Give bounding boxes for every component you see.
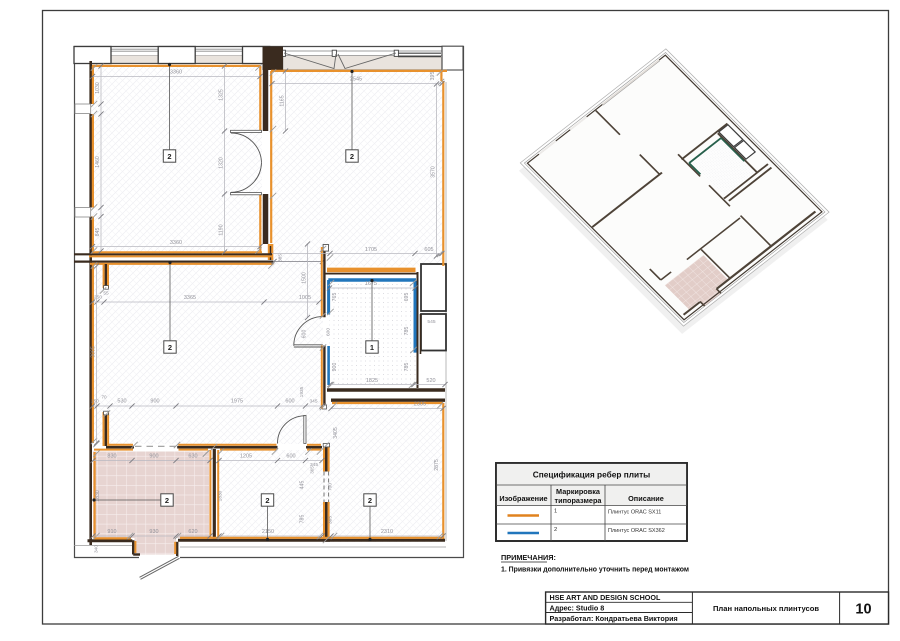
svg-text:630: 630	[188, 454, 197, 460]
svg-text:3570: 3570	[431, 166, 437, 178]
svg-text:2: 2	[167, 152, 171, 161]
svg-text:1005: 1005	[299, 295, 311, 301]
svg-text:Описание: Описание	[628, 494, 664, 503]
svg-text:10: 10	[855, 602, 871, 618]
svg-text:2310: 2310	[381, 529, 393, 535]
svg-text:2: 2	[368, 496, 372, 505]
svg-text:765: 765	[332, 293, 338, 302]
svg-text:2305: 2305	[414, 402, 426, 408]
svg-text:1: 1	[554, 509, 557, 515]
svg-text:930: 930	[149, 529, 158, 535]
svg-text:530: 530	[117, 399, 126, 405]
svg-text:600: 600	[326, 328, 332, 336]
svg-text:365: 365	[328, 516, 334, 524]
svg-text:2: 2	[165, 496, 169, 505]
svg-text:2: 2	[554, 527, 557, 533]
svg-text:1030: 1030	[95, 82, 101, 94]
svg-text:365: 365	[310, 466, 315, 474]
svg-text:55: 55	[103, 291, 109, 297]
svg-text:600: 600	[302, 330, 308, 339]
svg-text:3405: 3405	[333, 427, 339, 439]
svg-text:Плинтус ORAC SX11: Плинтус ORAC SX11	[608, 510, 661, 516]
svg-text:Адрес: Studio 8: Адрес: Studio 8	[550, 603, 605, 612]
svg-text:1325: 1325	[219, 89, 225, 101]
svg-text:1165: 1165	[280, 95, 286, 106]
svg-text:1205: 1205	[240, 454, 252, 460]
svg-text:1675: 1675	[365, 281, 377, 287]
svg-text:1500: 1500	[302, 272, 308, 284]
svg-text:340: 340	[94, 545, 100, 553]
svg-text:395: 395	[430, 72, 436, 81]
svg-text:типоразмера: типоразмера	[555, 496, 603, 505]
svg-text:Изображение: Изображение	[499, 494, 547, 503]
svg-text:HSE ART AND DESIGN SCHOOL: HSE ART AND DESIGN SCHOOL	[550, 593, 661, 602]
svg-text:785: 785	[404, 363, 410, 372]
svg-text:ПРИМЕЧАНИЯ:: ПРИМЕЧАНИЯ:	[501, 553, 556, 562]
svg-text:600: 600	[285, 399, 294, 405]
svg-text:250: 250	[94, 295, 102, 301]
svg-text:545: 545	[427, 319, 435, 325]
svg-text:2875: 2875	[434, 459, 440, 471]
svg-text:3665: 3665	[91, 346, 97, 358]
svg-text:1825: 1825	[366, 378, 378, 384]
svg-text:695: 695	[404, 293, 410, 302]
svg-text:2: 2	[265, 496, 269, 505]
svg-text:3360: 3360	[170, 70, 182, 76]
svg-text:1460: 1460	[95, 156, 101, 168]
svg-text:70: 70	[101, 395, 107, 400]
svg-text:910: 910	[107, 529, 116, 535]
svg-text:3365: 3365	[184, 295, 196, 301]
svg-text:1935: 1935	[299, 386, 305, 397]
svg-text:900: 900	[332, 363, 338, 372]
svg-text:Маркировка: Маркировка	[556, 487, 601, 496]
svg-text:1830: 1830	[218, 490, 224, 501]
svg-text:1705: 1705	[365, 247, 377, 253]
svg-text:600: 600	[286, 454, 295, 460]
svg-text:2: 2	[350, 152, 354, 161]
svg-text:3360: 3360	[170, 240, 182, 246]
svg-text:1975: 1975	[231, 399, 243, 405]
svg-text:Плинтус ORAC SX362: Плинтус ORAC SX362	[608, 528, 665, 534]
svg-text:605: 605	[424, 247, 433, 253]
svg-text:830: 830	[107, 454, 116, 460]
svg-text:900: 900	[149, 454, 158, 460]
svg-text:785: 785	[300, 515, 306, 524]
svg-text:План напольных плинтусов: План напольных плинтусов	[713, 604, 819, 613]
svg-text:Разработал: Кондратьева Виктор: Разработал: Кондратьева Виктория	[550, 614, 678, 623]
svg-text:1: 1	[370, 343, 374, 352]
svg-text:2: 2	[168, 343, 172, 352]
svg-text:Спецификация ребер плиты: Спецификация ребер плиты	[533, 470, 651, 480]
svg-text:2150: 2150	[262, 529, 274, 535]
svg-text:785: 785	[404, 327, 410, 336]
svg-text:1190: 1190	[219, 224, 225, 235]
svg-text:620: 620	[188, 529, 197, 535]
svg-text:345: 345	[309, 399, 317, 405]
svg-text:1320: 1320	[219, 157, 225, 169]
svg-text:845: 845	[95, 228, 101, 237]
svg-text:700: 700	[328, 483, 334, 491]
svg-text:1. Привязки дополнительно уточ: 1. Привязки дополнительно уточнить перед…	[501, 567, 689, 574]
svg-text:900: 900	[150, 399, 159, 405]
svg-text:445: 445	[300, 481, 306, 490]
svg-text:385: 385	[278, 254, 284, 262]
svg-text:520: 520	[426, 378, 435, 384]
svg-text:250: 250	[91, 399, 99, 404]
